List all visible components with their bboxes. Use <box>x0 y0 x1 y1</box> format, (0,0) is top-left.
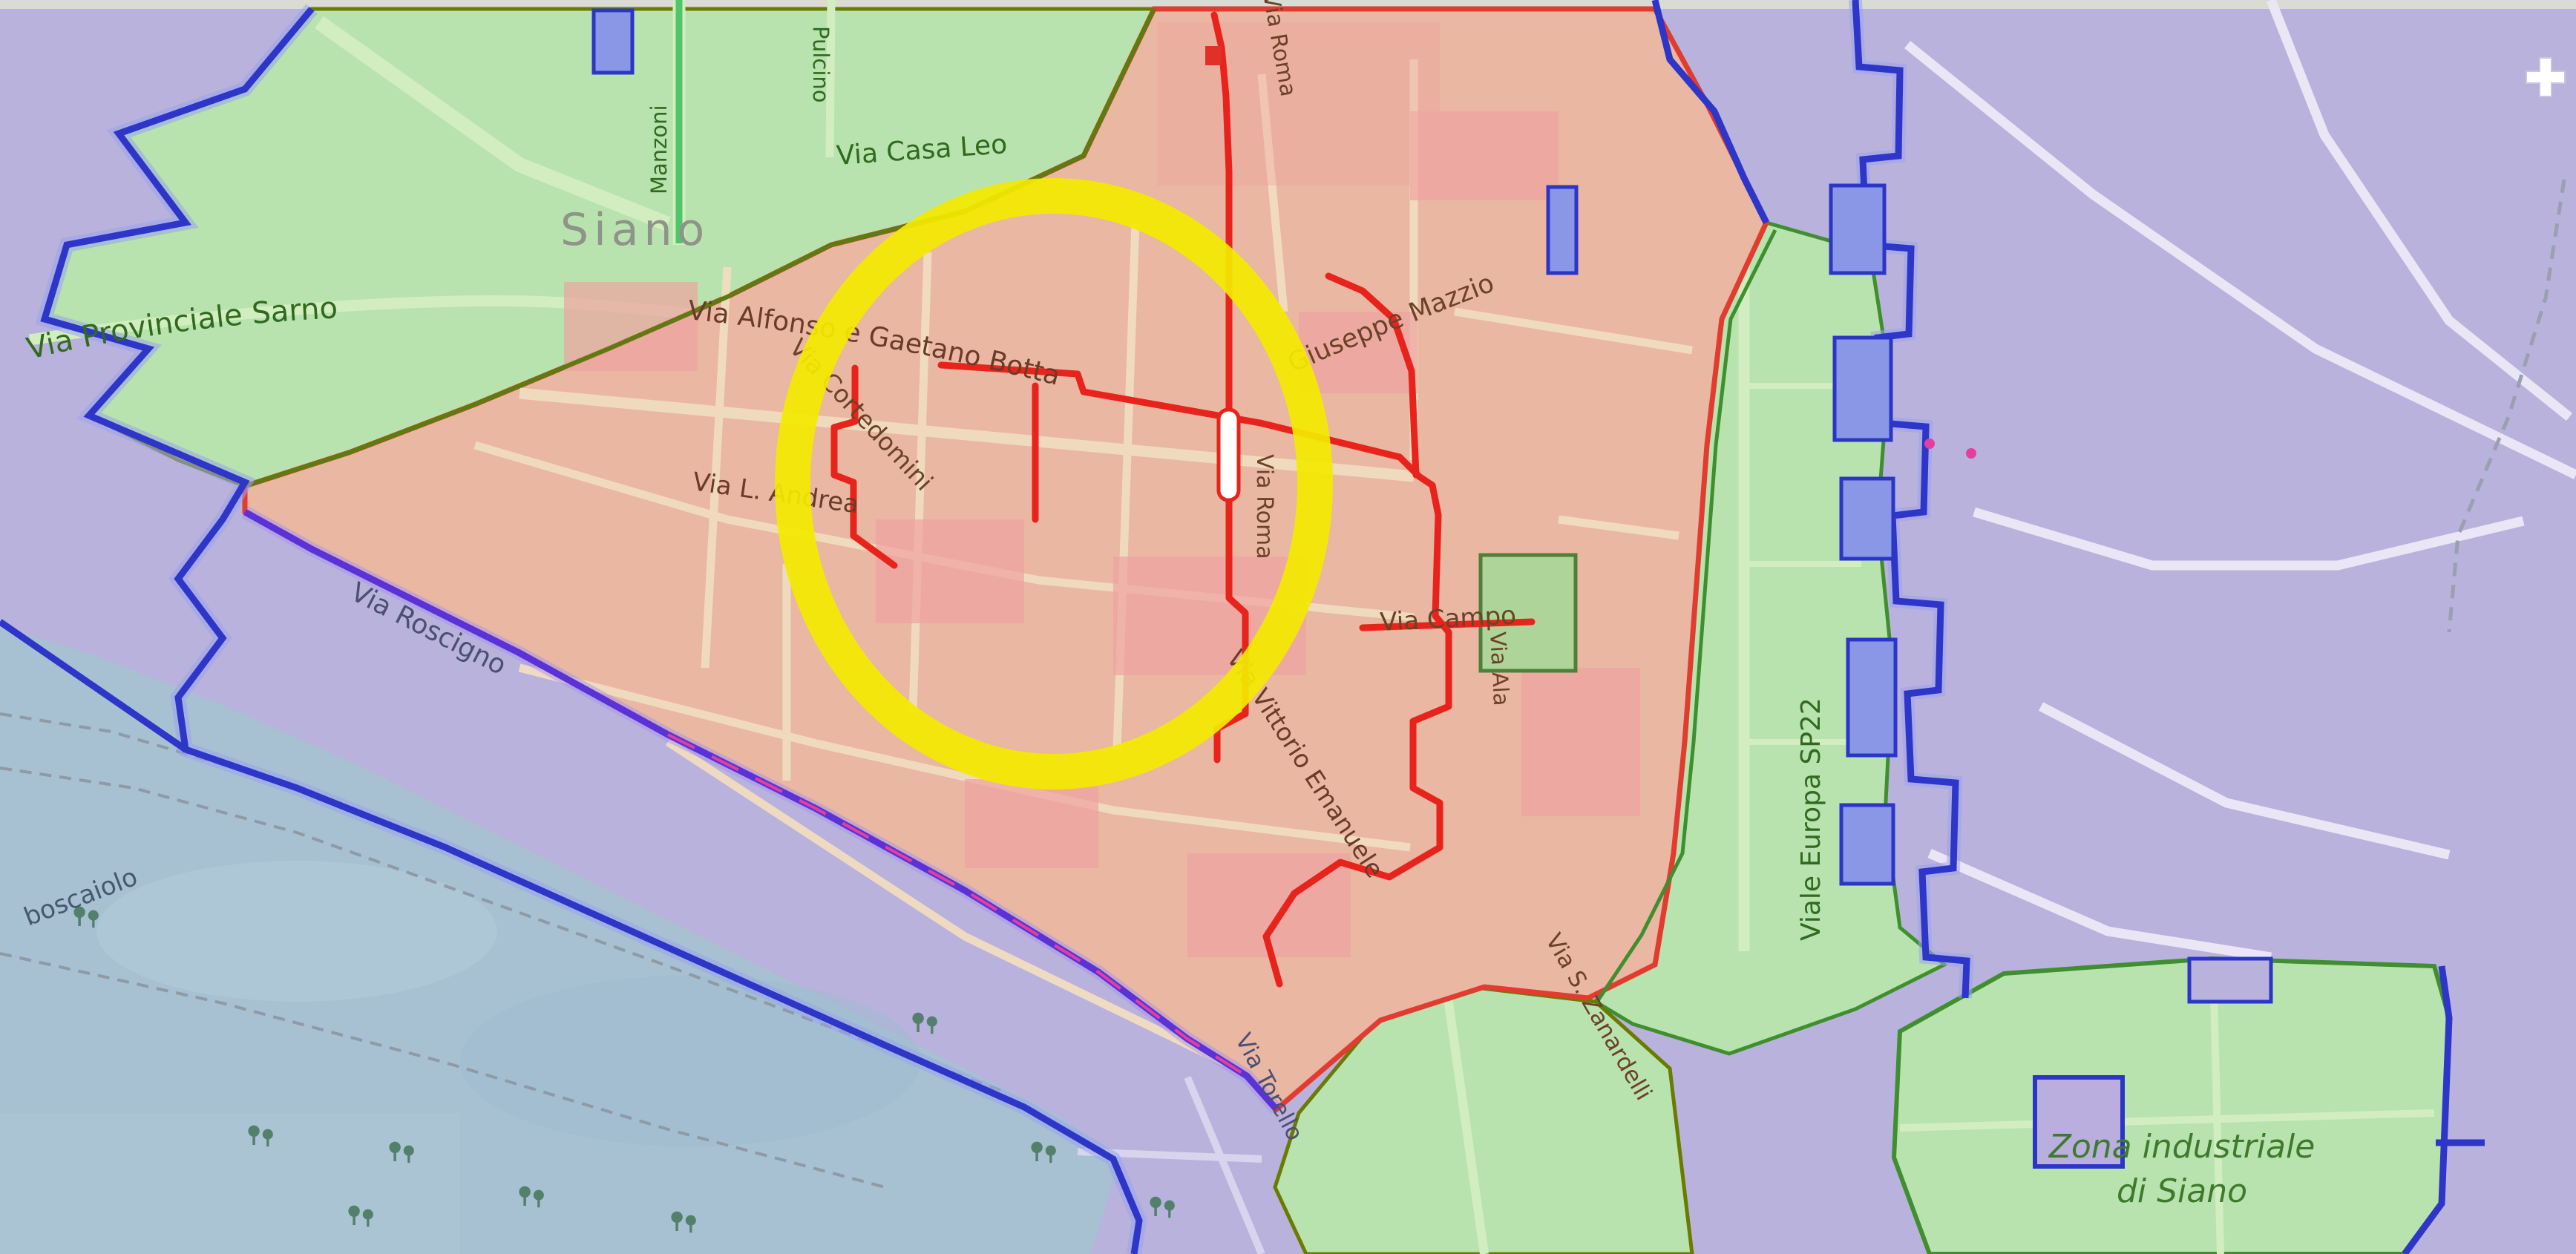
city-label: Siano <box>560 204 709 256</box>
street-label-via-ala: Via Ala <box>1485 631 1514 707</box>
park-patch <box>460 976 920 1146</box>
red-poi-square <box>1205 46 1222 65</box>
map-canvas[interactable]: Siano Via Provinciale Sarno Via Casa Leo… <box>0 0 2576 1254</box>
park-patch <box>96 861 497 1002</box>
street-label-viale-europa-sp22: Viale Europa SP22 <box>1796 697 1826 941</box>
poi-dot-icon <box>1924 439 1935 449</box>
building-industrial <box>2189 959 2271 1002</box>
industrial-zone-label-line2: di Siano <box>2117 1172 2247 1210</box>
street-label-pulcino: Pulcino <box>808 26 833 103</box>
street-label-manzoni: Manzoni <box>646 105 672 194</box>
map-svg[interactable]: Siano Via Provinciale Sarno Via Casa Leo… <box>0 0 2576 1254</box>
industrial-zone-label-line1: Zona industriale <box>2048 1128 2316 1166</box>
park-patch <box>0 1113 460 1254</box>
route-marker-capsule <box>1219 410 1239 500</box>
poi-dot-icon <box>1966 448 1976 459</box>
street-label-via-roma: Via Roma <box>1251 454 1277 559</box>
